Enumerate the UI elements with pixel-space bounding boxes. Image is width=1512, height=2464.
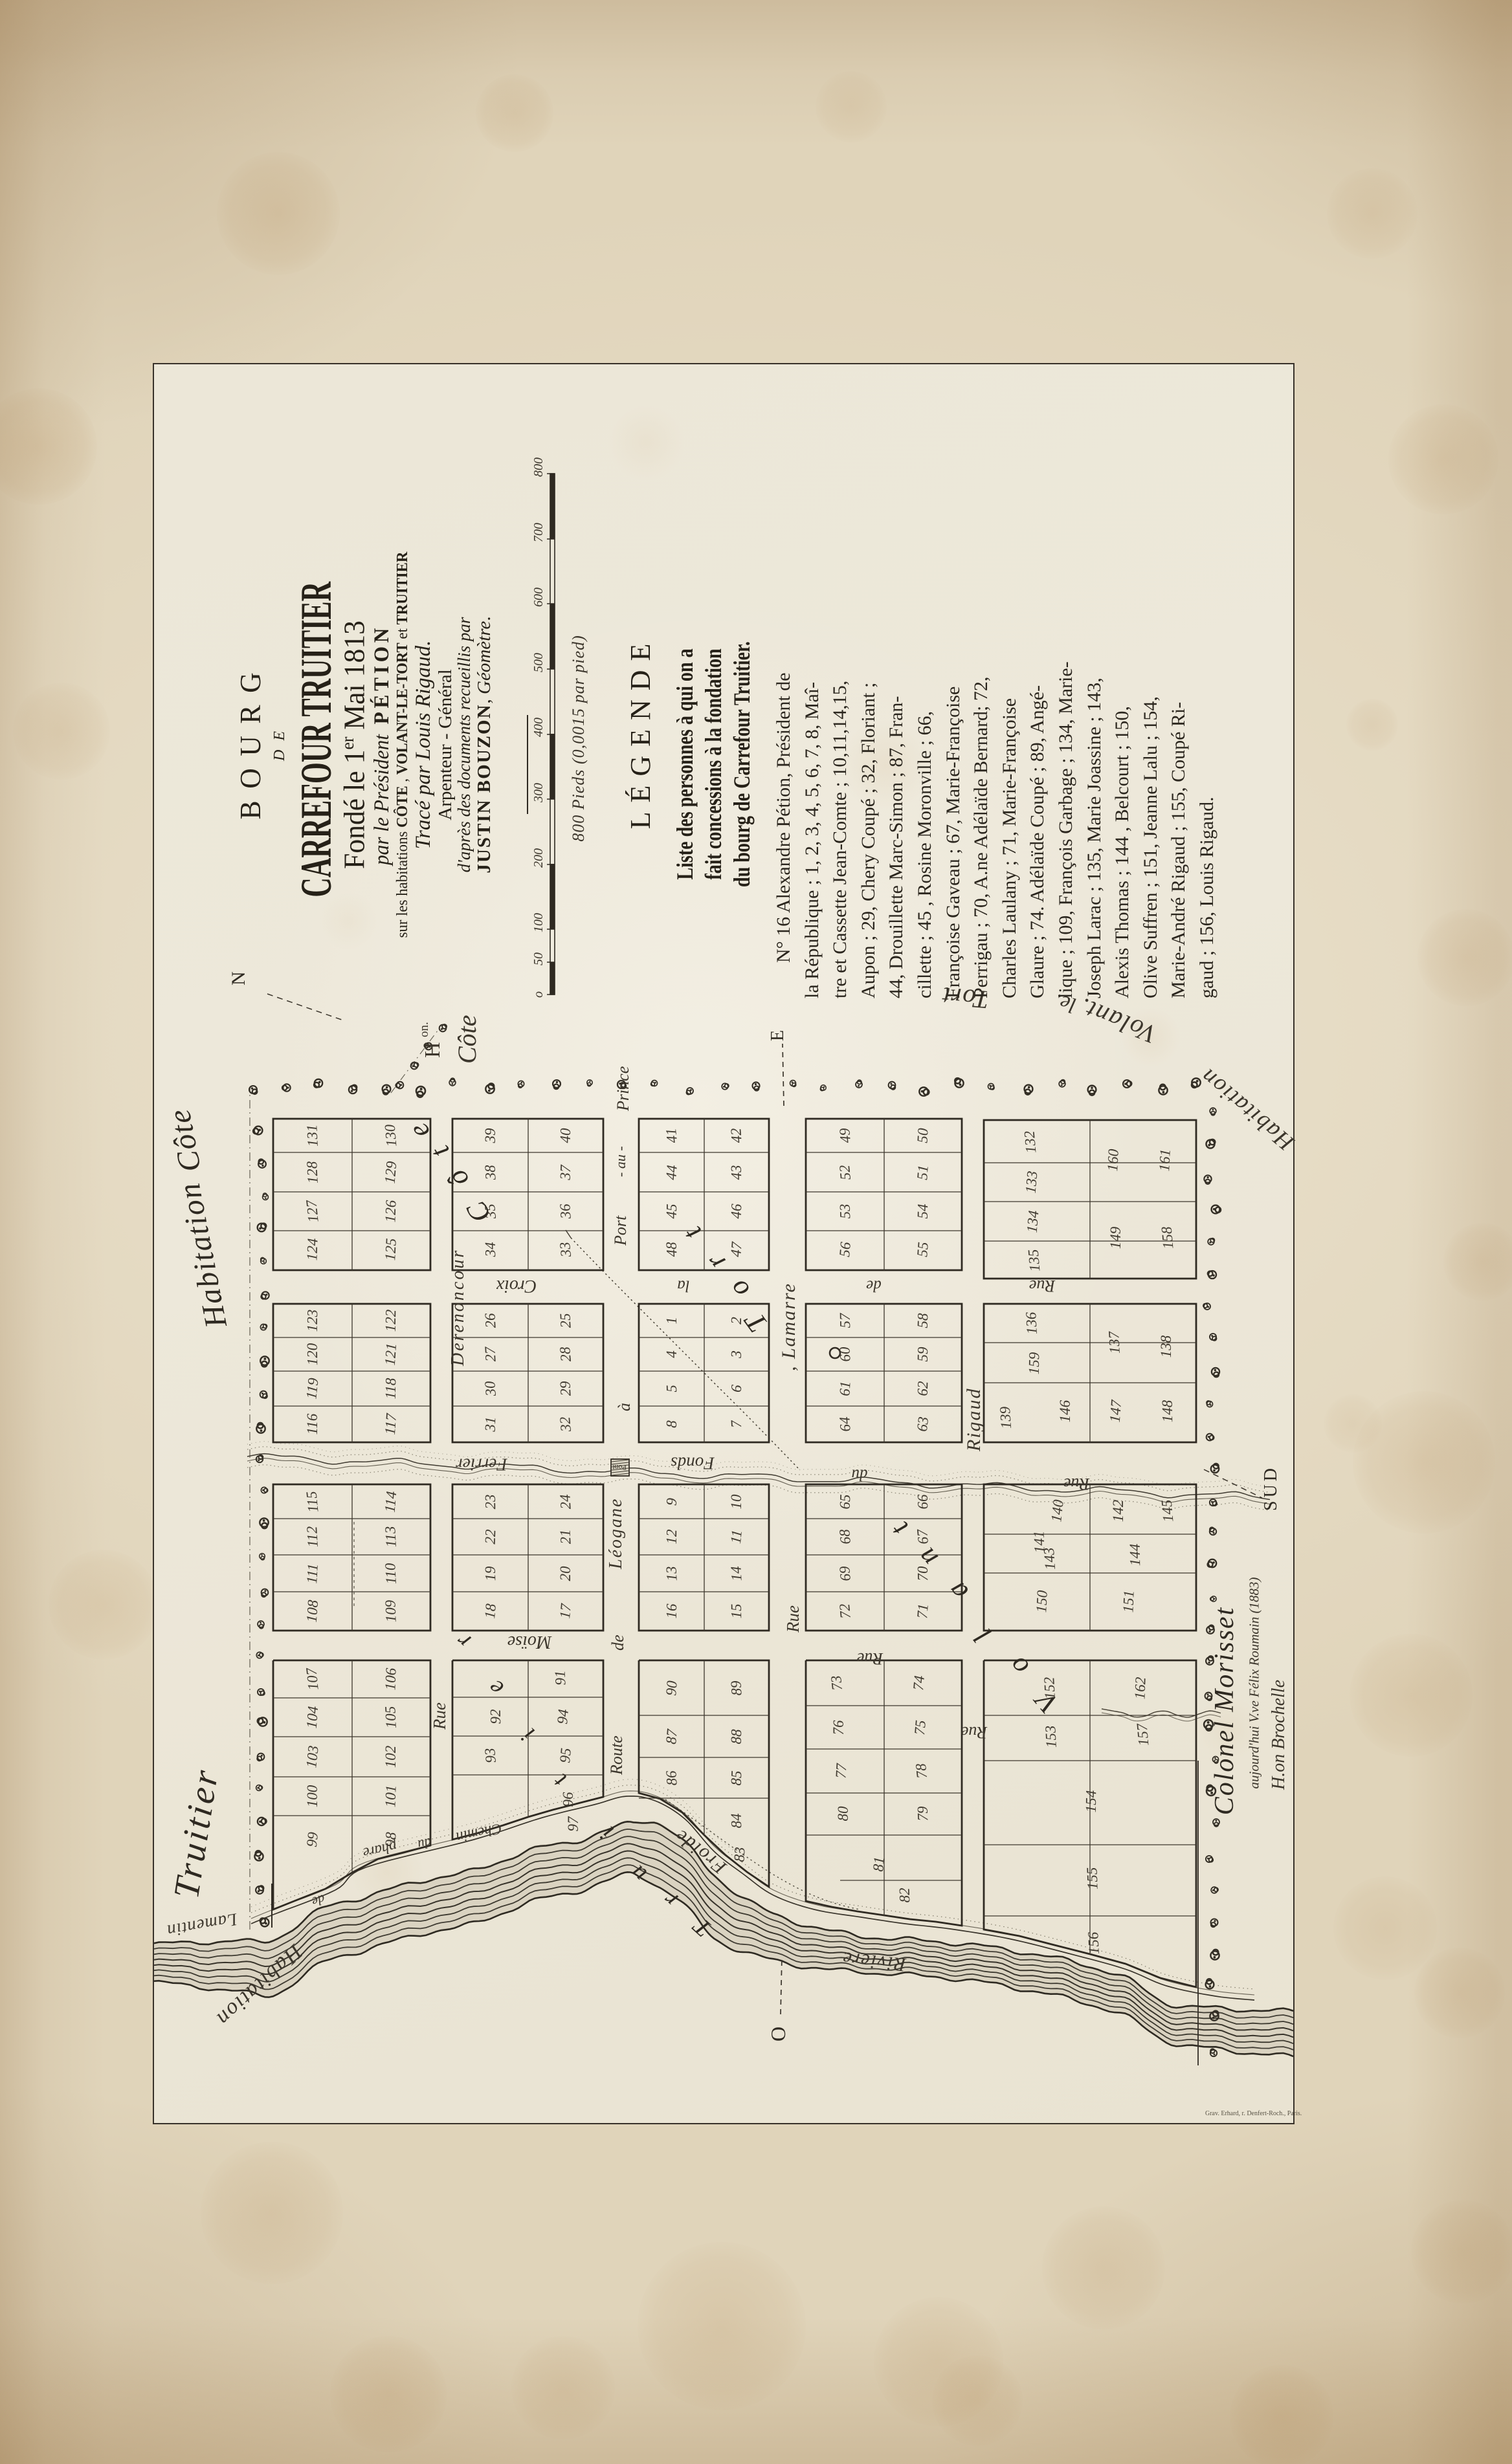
svg-text:800: 800 <box>531 457 546 477</box>
svg-text:o: o <box>531 991 546 998</box>
